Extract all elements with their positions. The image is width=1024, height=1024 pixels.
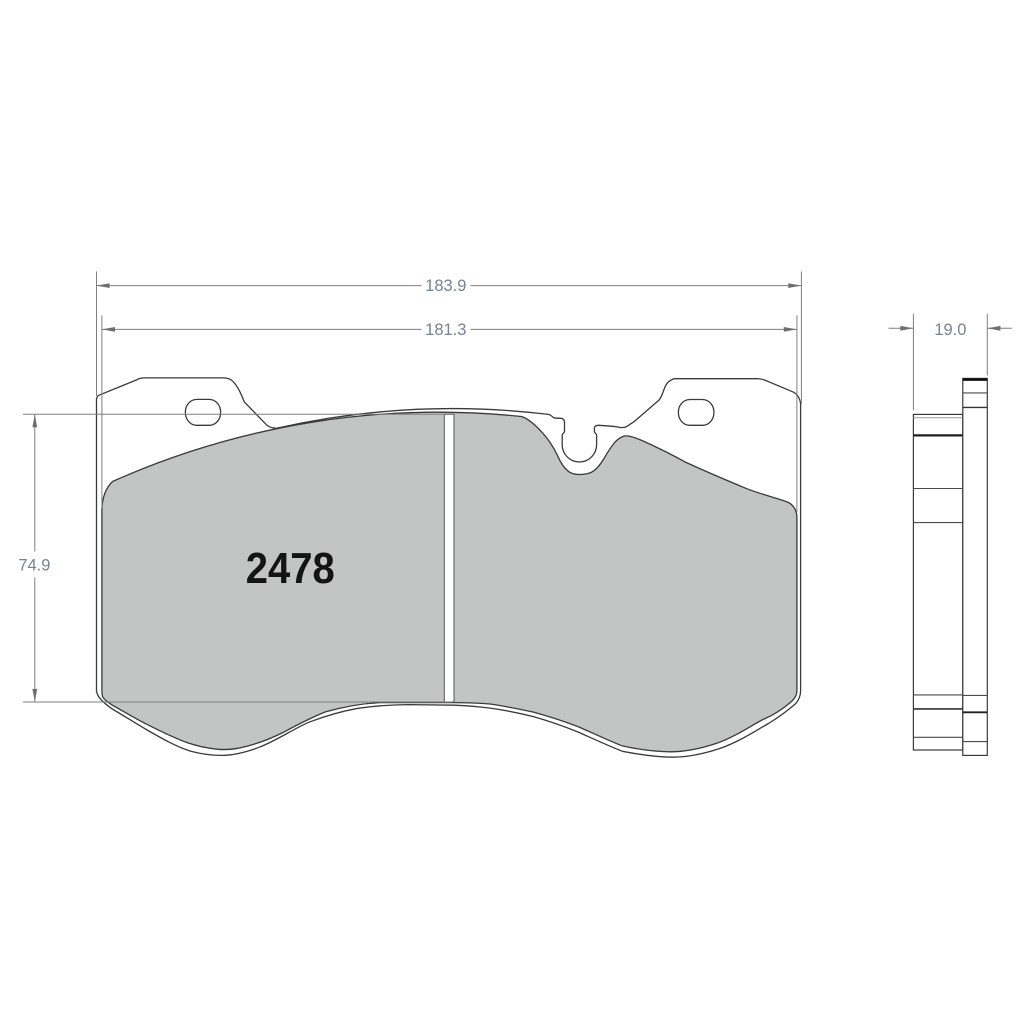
svg-text:19.0: 19.0 [934, 321, 966, 339]
svg-text:74.9: 74.9 [18, 556, 50, 574]
svg-text:183.9: 183.9 [425, 277, 466, 295]
svg-text:2478: 2478 [246, 544, 335, 593]
svg-text:181.3: 181.3 [425, 321, 466, 339]
